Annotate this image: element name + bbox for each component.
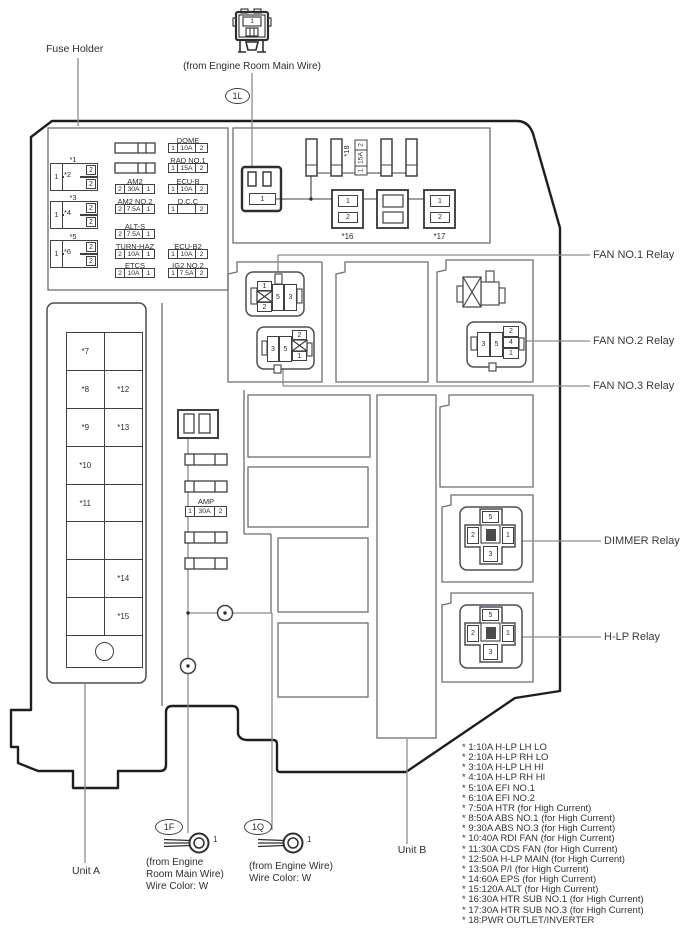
fuse-18: 115A2 — [355, 139, 368, 175]
dimmer-pin-3: 3 — [483, 546, 498, 562]
strip-cell: *7 — [67, 333, 105, 371]
amp-column-shapes — [178, 410, 227, 569]
top-connector-pin: 1 — [243, 17, 261, 26]
dimmer-pin-2: 2 — [467, 527, 479, 544]
fuse-alts: 27.5A1 — [115, 229, 155, 239]
fuse-holder-label: Fuse Holder — [46, 44, 103, 56]
fuse-radno1: 115A2 — [168, 163, 208, 173]
terminal-1f-caption-1: (from Engine — [146, 857, 203, 868]
fan1-pin-5: 5 — [272, 284, 284, 311]
fan1-pin-1: 1 — [257, 281, 272, 291]
legend-item: * 16:30A HTR SUB NO.1 (for High Current) — [462, 895, 644, 905]
hlp-pin-3: 3 — [483, 644, 498, 660]
fan2-pin-2: 2 — [503, 326, 519, 337]
fuse-box-diagram: Fuse Holder (from Engine Room Main Wire)… — [0, 0, 693, 943]
fuse-etcs: 210A1 — [115, 268, 155, 278]
relay17-cell2: 2 — [430, 212, 450, 223]
fuse-18-label: *18 — [342, 141, 352, 161]
bolt-hole-icon — [95, 642, 114, 661]
legend-item: * 18:PWR OUTLET/INVERTER — [462, 916, 644, 926]
fuse-ecub: 110A2 — [168, 184, 208, 194]
relay16-cell1: 1 — [338, 195, 358, 207]
fan3-pin-1: 1 — [292, 351, 307, 361]
fan1-pin-3: 3 — [284, 284, 297, 311]
high-current-fuse-strip: *7 *8 *12 *9 *13 *10 *11 *14 *15 — [66, 332, 143, 668]
amp-fuse-name: AMP — [190, 497, 222, 506]
fuse-turnhaz: 210A1 — [115, 249, 155, 259]
strip-cell — [105, 333, 143, 371]
relay16-label: *16 — [332, 232, 363, 241]
strip-cell — [105, 447, 143, 485]
strip-cell: *10 — [67, 447, 105, 485]
fuse-am2no2: 27.5A1 — [115, 204, 155, 214]
junction-dots — [186, 171, 413, 614]
fuse-dcc: 12 — [168, 204, 208, 214]
strip-cell — [67, 598, 105, 636]
relay16-cell2: 2 — [338, 212, 358, 223]
fan1-pin-2: 2 — [257, 302, 272, 312]
strip-cell — [67, 522, 105, 560]
block1-pin-tr: 2 — [86, 165, 96, 175]
hlp-relay-label: H-LP Relay — [604, 631, 660, 643]
fuse-am2: 230A1 — [115, 184, 155, 194]
terminal-1f-caption-3: Wire Color: W — [146, 881, 208, 892]
fan3-relay-label: FAN NO.3 Relay — [593, 380, 674, 392]
strip-cell: *12 — [105, 371, 143, 409]
fan2-pin-1: 1 — [503, 348, 519, 359]
relay17-cell1: 1 — [430, 195, 450, 207]
fan1-relay-label: FAN NO.1 Relay — [593, 249, 674, 261]
fan2-pin-3: 3 — [477, 332, 490, 357]
terminal-1q-caption-1: (from Engine Wire) — [249, 861, 333, 872]
block3-pin-br: 2 — [86, 256, 96, 266]
blank-table-slots — [115, 143, 155, 173]
block3-pin-tr: 2 — [86, 242, 96, 252]
terminal-1q-caption-2: Wire Color: W — [249, 873, 311, 884]
dimmer-pin-5: 5 — [482, 511, 499, 523]
strip-cell — [67, 560, 105, 598]
fan2-pin-4: 4 — [503, 337, 519, 348]
socket-1l-pin: 1 — [249, 193, 276, 205]
strip-cell: *15 — [105, 598, 143, 636]
top-connector-caption: (from Engine Room Main Wire) — [172, 61, 332, 72]
amp-fuse: 130A2 — [185, 506, 227, 517]
strip-bolt-cell — [67, 636, 142, 667]
hlp-pin-2: 2 — [467, 625, 479, 642]
fuse-ig2no2: 17.5A2 — [168, 268, 208, 278]
strip-cell: *11 — [67, 485, 105, 523]
strip-cell — [105, 522, 143, 560]
engine-room-connector-icon — [233, 9, 271, 52]
connector-1l-badge: 1L — [225, 88, 250, 104]
fan3-pin-2: 2 — [292, 330, 307, 340]
unit-b-label: Unit B — [390, 845, 434, 857]
terminal-1f-badge: 1F — [155, 819, 183, 835]
block1-pin-br: 2 — [86, 179, 96, 189]
strip-cell — [105, 485, 143, 523]
fuse-label-2: *2 — [64, 170, 80, 179]
block2-pin-tr: 2 — [86, 203, 96, 213]
fuse-label-6: *6 — [64, 247, 80, 256]
dimmer-pin-1: 1 — [502, 527, 514, 544]
fan3-pin-3: 3 — [267, 336, 279, 362]
fan3-pin-5: 5 — [279, 336, 292, 362]
fan2-relay-label: FAN NO.2 Relay — [593, 335, 674, 347]
fuse-ecub2: 110A2 — [168, 249, 208, 259]
block2-pin-br: 2 — [86, 217, 96, 227]
unit-a-label: Unit A — [64, 866, 108, 878]
terminal-1q-badge: 1Q — [244, 819, 272, 835]
fuse-dome: 110A2 — [168, 143, 208, 153]
fuse-label-4: *4 — [64, 208, 80, 217]
strip-cell: *9 — [67, 409, 105, 447]
strip-cell: *8 — [67, 371, 105, 409]
fuse-legend: * 1:10A H-LP LH LO * 2:10A H-LP RH LO * … — [462, 743, 644, 926]
terminal-1q-pin: 1 — [307, 836, 311, 845]
fan2-pin-5: 5 — [490, 332, 503, 357]
ring-terminal-1q — [258, 834, 303, 853]
relay17-label: *17 — [424, 232, 455, 241]
dimmer-relay-label: DIMMER Relay — [604, 535, 680, 547]
hlp-pin-5: 5 — [482, 609, 499, 621]
hlp-pin-1: 1 — [502, 625, 514, 642]
terminal-1f-pin: 1 — [213, 836, 217, 845]
ring-terminal-1f — [164, 834, 209, 853]
strip-cell: *14 — [105, 560, 143, 598]
strip-cell: *13 — [105, 409, 143, 447]
terminal-1f-caption-2: Room Main Wire) — [146, 869, 224, 880]
